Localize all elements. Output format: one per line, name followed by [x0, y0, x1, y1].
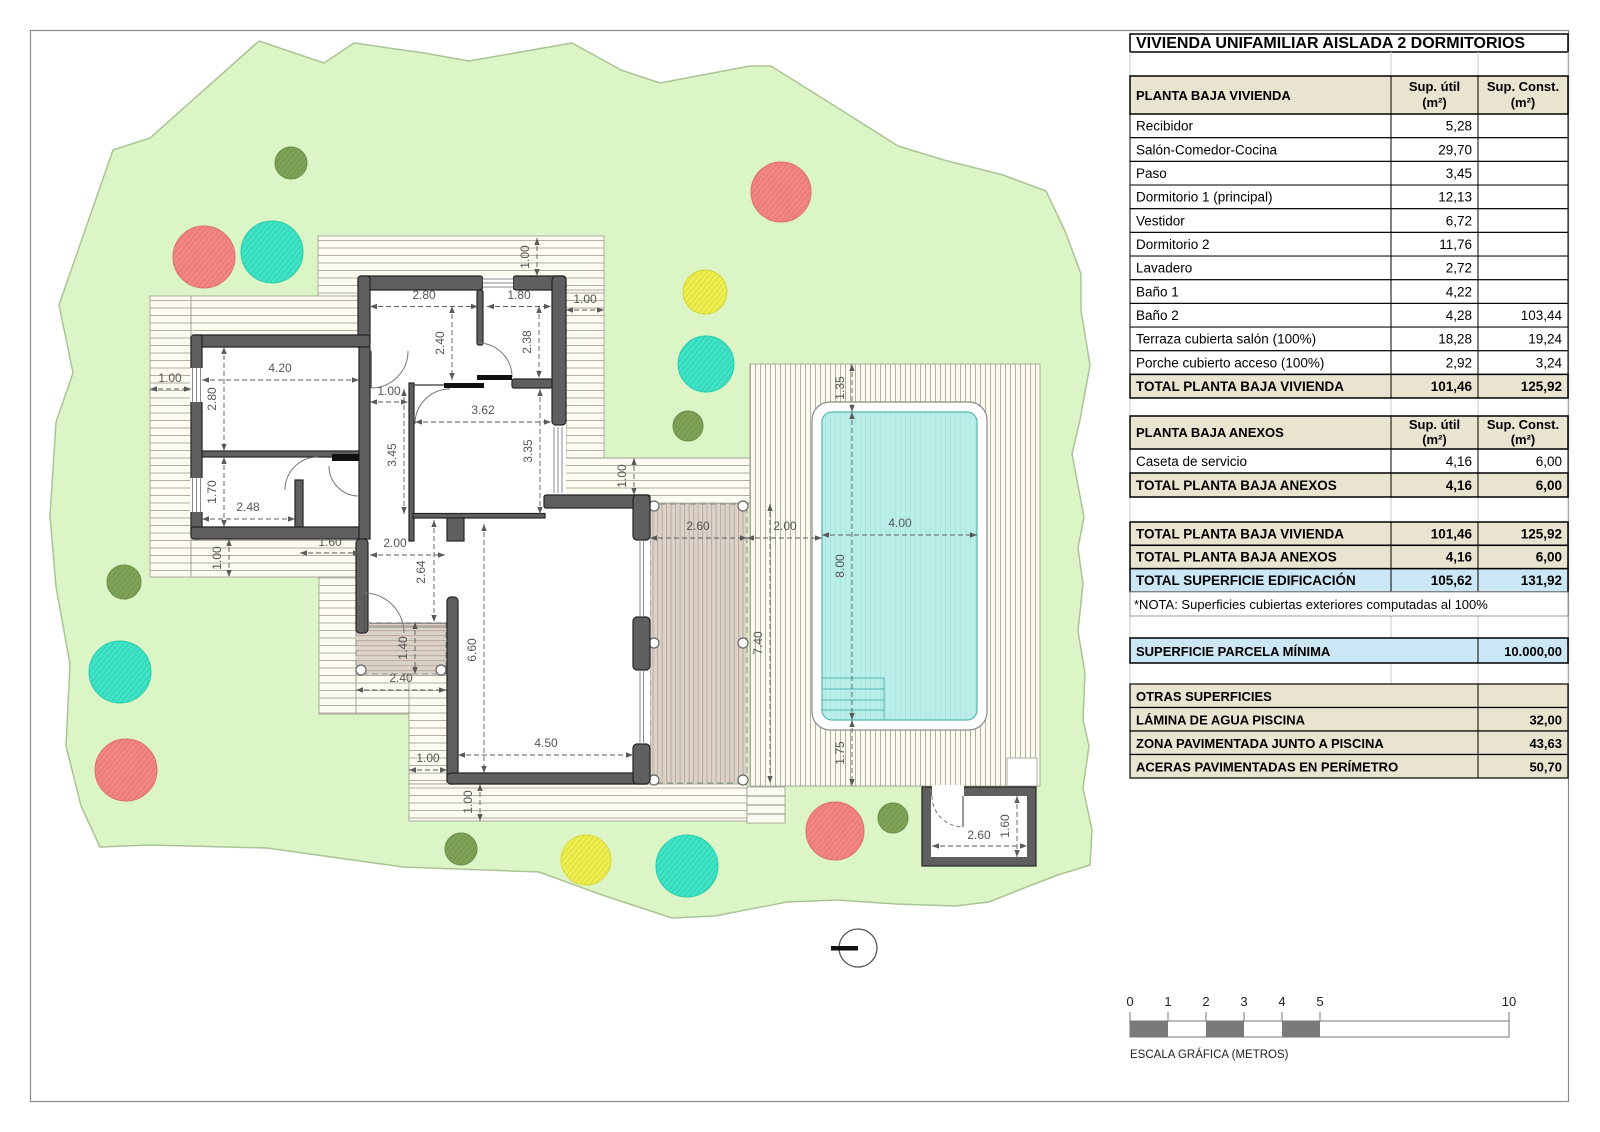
svg-text:Porche cubierto acceso (100%): Porche cubierto acceso (100%) [1136, 355, 1324, 370]
svg-text:Dormitorio 1 (principal): Dormitorio 1 (principal) [1136, 190, 1273, 205]
svg-text:Dormitorio 2: Dormitorio 2 [1136, 237, 1210, 252]
svg-text:10: 10 [1502, 994, 1516, 1009]
svg-text:4: 4 [1278, 994, 1285, 1009]
svg-text:TOTAL PLANTA BAJA VIVIENDA: TOTAL PLANTA BAJA VIVIENDA [1136, 526, 1344, 541]
svg-text:1.35: 1.35 [833, 376, 847, 400]
svg-text:(m²): (m²) [1422, 432, 1447, 447]
svg-text:1.00: 1.00 [615, 464, 629, 488]
svg-text:TOTAL PLANTA BAJA ANEXOS: TOTAL PLANTA BAJA ANEXOS [1136, 478, 1337, 493]
svg-text:2.40: 2.40 [389, 671, 413, 685]
svg-text:Sup. útil: Sup. útil [1409, 79, 1460, 94]
svg-text:LÁMINA DE AGUA PISCINA: LÁMINA DE AGUA PISCINA [1136, 712, 1306, 727]
svg-text:1.70: 1.70 [205, 480, 219, 504]
svg-text:19,24: 19,24 [1528, 332, 1562, 347]
svg-text:Paso: Paso [1136, 166, 1167, 181]
svg-text:103,44: 103,44 [1521, 308, 1563, 323]
svg-text:7.40: 7.40 [751, 631, 765, 655]
svg-text:1.00: 1.00 [518, 245, 532, 269]
svg-text:2.64: 2.64 [414, 560, 428, 584]
svg-text:6,00: 6,00 [1536, 478, 1562, 493]
svg-text:VIVIENDA UNIFAMILIAR AISLADA 2: VIVIENDA UNIFAMILIAR AISLADA 2 DORMITORI… [1136, 35, 1525, 52]
svg-text:1.75: 1.75 [833, 741, 847, 765]
svg-text:TOTAL PLANTA BAJA VIVIENDA: TOTAL PLANTA BAJA VIVIENDA [1136, 379, 1344, 394]
svg-text:2.48: 2.48 [236, 500, 260, 514]
svg-text:3,45: 3,45 [1446, 166, 1472, 181]
svg-text:2.00: 2.00 [773, 519, 797, 533]
svg-text:50,70: 50,70 [1529, 759, 1562, 774]
svg-text:PLANTA BAJA ANEXOS: PLANTA BAJA ANEXOS [1136, 425, 1284, 440]
svg-text:105,62: 105,62 [1431, 573, 1472, 588]
svg-text:TOTAL SUPERFICIE EDIFICACIÓN: TOTAL SUPERFICIE EDIFICACIÓN [1136, 573, 1356, 588]
svg-text:Sup. Const.: Sup. Const. [1487, 79, 1559, 94]
svg-text:0: 0 [1126, 994, 1133, 1009]
svg-text:125,92: 125,92 [1521, 526, 1562, 541]
svg-text:Sup. útil: Sup. útil [1409, 417, 1460, 432]
svg-text:1: 1 [1164, 994, 1171, 1009]
svg-text:4.20: 4.20 [268, 361, 292, 375]
svg-text:2.80: 2.80 [205, 387, 219, 411]
svg-text:8.00: 8.00 [833, 554, 847, 578]
svg-text:SUPERFICIE PARCELA MÍNIMA: SUPERFICIE PARCELA MÍNIMA [1136, 644, 1331, 659]
svg-text:4,16: 4,16 [1446, 478, 1473, 493]
svg-text:1.00: 1.00 [377, 384, 401, 398]
svg-text:ZONA PAVIMENTADA JUNTO A PISCI: ZONA PAVIMENTADA JUNTO A PISCINA [1136, 736, 1384, 751]
svg-text:1.60: 1.60 [318, 535, 342, 549]
svg-text:ACERAS PAVIMENTADAS EN PERÍMET: ACERAS PAVIMENTADAS EN PERÍMETRO [1136, 759, 1398, 774]
svg-text:Sup. Const.: Sup. Const. [1487, 417, 1559, 432]
svg-text:PLANTA BAJA VIVIENDA: PLANTA BAJA VIVIENDA [1136, 88, 1291, 103]
svg-text:Baño 1: Baño 1 [1136, 284, 1179, 299]
svg-text:(m²): (m²) [1511, 432, 1536, 447]
svg-text:6.60: 6.60 [465, 638, 479, 662]
svg-text:5: 5 [1316, 994, 1323, 1009]
svg-text:(m²): (m²) [1511, 95, 1536, 110]
svg-text:6,00: 6,00 [1536, 550, 1562, 565]
svg-text:2.80: 2.80 [412, 288, 436, 302]
svg-text:Lavadero: Lavadero [1136, 261, 1192, 276]
svg-text:1.00: 1.00 [210, 546, 224, 570]
svg-text:ESCALA GRÁFICA (METROS): ESCALA GRÁFICA (METROS) [1130, 1048, 1289, 1061]
svg-text:29,70: 29,70 [1438, 142, 1472, 157]
svg-text:2.60: 2.60 [686, 519, 710, 533]
svg-text:4,16: 4,16 [1446, 550, 1473, 565]
svg-text:4,28: 4,28 [1446, 308, 1472, 323]
svg-text:43,63: 43,63 [1529, 736, 1562, 751]
svg-text:3,24: 3,24 [1536, 355, 1563, 370]
svg-text:Terraza cubierta salón (100%): Terraza cubierta salón (100%) [1136, 332, 1316, 347]
svg-text:12,13: 12,13 [1438, 190, 1472, 205]
svg-text:TOTAL PLANTA BAJA ANEXOS: TOTAL PLANTA BAJA ANEXOS [1136, 550, 1337, 565]
svg-text:125,92: 125,92 [1521, 379, 1562, 394]
svg-text:32,00: 32,00 [1529, 712, 1562, 727]
svg-text:11,76: 11,76 [1439, 237, 1472, 252]
svg-text:Recibidor: Recibidor [1136, 119, 1194, 134]
svg-text:Vestidor: Vestidor [1136, 213, 1185, 228]
svg-text:3.45: 3.45 [385, 443, 399, 467]
svg-text:2.40: 2.40 [433, 331, 447, 355]
svg-text:1.00: 1.00 [461, 790, 475, 814]
svg-text:4.00: 4.00 [888, 516, 912, 530]
svg-text:4,22: 4,22 [1446, 284, 1472, 299]
svg-text:2.38: 2.38 [520, 330, 534, 354]
svg-text:1.40: 1.40 [396, 636, 410, 660]
svg-text:1.60: 1.60 [998, 814, 1012, 838]
svg-text:Baño 2: Baño 2 [1136, 308, 1179, 323]
svg-text:6,72: 6,72 [1446, 213, 1472, 228]
svg-text:18,28: 18,28 [1438, 332, 1472, 347]
svg-text:1.80: 1.80 [507, 288, 531, 302]
svg-text:131,92: 131,92 [1521, 573, 1562, 588]
svg-text:1.00: 1.00 [573, 292, 597, 306]
svg-text:2: 2 [1202, 994, 1209, 1009]
svg-text:3: 3 [1240, 994, 1247, 1009]
svg-text:101,46: 101,46 [1431, 379, 1473, 394]
svg-text:Caseta de servicio: Caseta de servicio [1136, 454, 1247, 469]
svg-text:OTRAS SUPERFICIES: OTRAS SUPERFICIES [1136, 689, 1272, 704]
svg-text:2.00: 2.00 [383, 536, 407, 550]
svg-text:10.000,00: 10.000,00 [1504, 644, 1562, 659]
svg-text:2,72: 2,72 [1446, 261, 1472, 276]
svg-text:Salón-Comedor-Cocina: Salón-Comedor-Cocina [1136, 142, 1278, 157]
svg-text:4,16: 4,16 [1446, 454, 1472, 469]
svg-text:2,92: 2,92 [1446, 355, 1472, 370]
svg-text:6,00: 6,00 [1536, 454, 1562, 469]
svg-text:2.60: 2.60 [967, 828, 991, 842]
svg-text:4.50: 4.50 [534, 736, 558, 750]
svg-text:1.00: 1.00 [416, 751, 440, 765]
svg-text:5,28: 5,28 [1446, 119, 1472, 134]
svg-text:3.35: 3.35 [521, 439, 535, 463]
svg-text:*NOTA: Superficies cubiertas e: *NOTA: Superficies cubiertas exteriores … [1134, 597, 1488, 612]
svg-text:(m²): (m²) [1422, 95, 1447, 110]
svg-text:101,46: 101,46 [1431, 526, 1473, 541]
svg-text:3.62: 3.62 [471, 403, 495, 417]
svg-text:1.00: 1.00 [158, 371, 182, 385]
